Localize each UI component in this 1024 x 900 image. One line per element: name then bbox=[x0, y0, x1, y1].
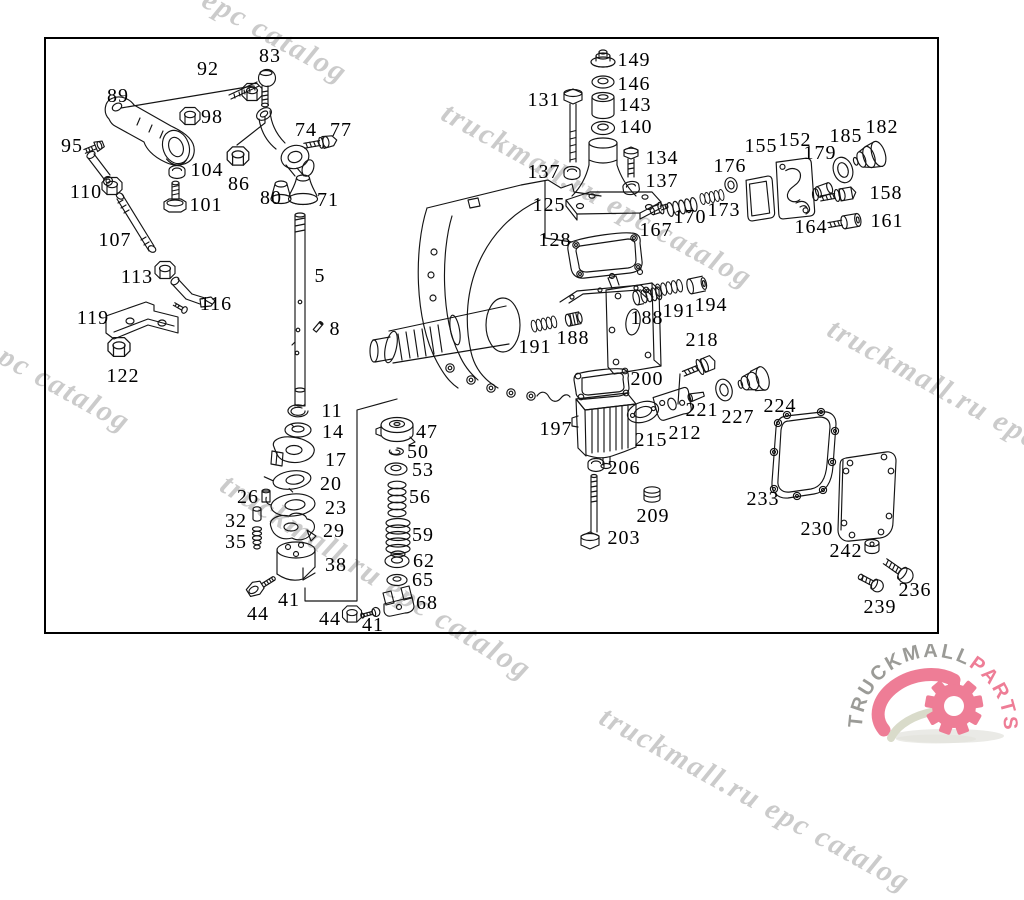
part-number-label: 227 bbox=[722, 407, 755, 427]
part-number-label: 17 bbox=[325, 450, 347, 470]
part-number-label: 20 bbox=[320, 474, 342, 494]
part-number-label: 14 bbox=[322, 422, 344, 442]
part-number-label: 224 bbox=[764, 396, 797, 416]
part-number-label: 92 bbox=[197, 59, 219, 79]
part-number-label: 182 bbox=[866, 117, 899, 137]
part-number-label: 74 bbox=[295, 120, 317, 140]
part-number-label: 77 bbox=[330, 120, 352, 140]
part-number-label: 41 bbox=[362, 615, 384, 635]
part-number-label: 11 bbox=[321, 401, 342, 421]
part-number-label: 32 bbox=[225, 511, 247, 531]
part-number-label: 194 bbox=[695, 295, 728, 315]
part-number-label: 170 bbox=[674, 207, 707, 227]
catalog-page: truckmall.ru epc catalogtruckmall.ru epc… bbox=[0, 0, 1024, 750]
truckmall-parts-logo: TRUCKMALLPARTS bbox=[836, 644, 1024, 750]
part-number-label: 233 bbox=[747, 489, 780, 509]
part-number-label: 107 bbox=[99, 230, 132, 250]
part-number-label: 29 bbox=[323, 521, 345, 541]
part-number-label: 56 bbox=[409, 487, 431, 507]
part-number-label: 158 bbox=[870, 183, 903, 203]
part-number-label: 191 bbox=[663, 301, 696, 321]
part-number-label: 134 bbox=[646, 148, 679, 168]
part-number-label: 173 bbox=[708, 200, 741, 220]
part-number-label: 104 bbox=[191, 160, 224, 180]
part-number-label: 215 bbox=[635, 430, 668, 450]
part-number-label: 218 bbox=[686, 330, 719, 350]
part-number-label: 212 bbox=[669, 423, 702, 443]
part-number-label: 137 bbox=[528, 162, 561, 182]
part-number-label: 95 bbox=[61, 136, 83, 156]
part-number-label: 44 bbox=[319, 609, 341, 629]
part-number-label: 185 bbox=[830, 126, 863, 146]
part-number-label: 128 bbox=[539, 230, 572, 250]
part-number-label: 44 bbox=[247, 604, 269, 624]
part-number-label: 59 bbox=[412, 525, 434, 545]
part-number-label: 164 bbox=[795, 217, 828, 237]
part-number-label: 83 bbox=[259, 46, 281, 66]
part-number-label: 197 bbox=[540, 419, 573, 439]
part-number-label: 5 bbox=[315, 266, 326, 286]
part-number-label: 86 bbox=[228, 174, 250, 194]
part-number-label: 116 bbox=[200, 294, 232, 314]
part-number-label: 188 bbox=[557, 328, 590, 348]
part-number-label: 89 bbox=[107, 86, 129, 106]
part-number-label: 62 bbox=[413, 551, 435, 571]
part-number-label: 206 bbox=[608, 458, 641, 478]
part-number-label: 161 bbox=[871, 211, 904, 231]
part-number-label: 209 bbox=[637, 506, 670, 526]
part-number-label: 101 bbox=[190, 195, 223, 215]
part-number-label: 113 bbox=[121, 267, 153, 287]
part-number-label: 68 bbox=[416, 593, 438, 613]
part-number-label: 137 bbox=[646, 171, 679, 191]
part-number-label: 236 bbox=[899, 580, 932, 600]
part-number-label: 230 bbox=[801, 519, 834, 539]
part-number-label: 38 bbox=[325, 555, 347, 575]
part-number-label: 239 bbox=[864, 597, 897, 617]
part-number-label: 41 bbox=[278, 590, 300, 610]
part-number-label: 143 bbox=[619, 95, 652, 115]
part-number-label: 8 bbox=[330, 319, 341, 339]
part-number-label: 71 bbox=[317, 190, 339, 210]
part-number-label: 65 bbox=[412, 570, 434, 590]
part-number-label: 122 bbox=[107, 366, 140, 386]
part-number-label: 47 bbox=[416, 422, 438, 442]
part-number-label: 98 bbox=[201, 107, 223, 127]
part-number-label: 176 bbox=[714, 156, 747, 176]
part-number-label: 221 bbox=[686, 400, 719, 420]
part-number-label: 155 bbox=[745, 136, 778, 156]
part-number-label: 53 bbox=[412, 460, 434, 480]
part-number-label: 191 bbox=[519, 337, 552, 357]
part-number-label: 119 bbox=[77, 308, 109, 328]
part-number-label: 149 bbox=[618, 50, 651, 70]
part-number-label: 188 bbox=[631, 308, 664, 328]
part-number-label: 140 bbox=[620, 117, 653, 137]
part-number-label: 125 bbox=[533, 195, 566, 215]
part-number-label: 80 bbox=[260, 188, 282, 208]
part-number-labels: 8392899874779510486110807110110711351168… bbox=[0, 0, 1024, 750]
part-number-label: 203 bbox=[608, 528, 641, 548]
part-number-label: 110 bbox=[70, 182, 102, 202]
part-number-label: 167 bbox=[640, 220, 673, 240]
part-number-label: 200 bbox=[631, 369, 664, 389]
part-number-label: 242 bbox=[830, 541, 863, 561]
part-number-label: 26 bbox=[237, 487, 259, 507]
part-number-label: 146 bbox=[618, 74, 651, 94]
part-number-label: 131 bbox=[528, 90, 561, 110]
part-number-label: 35 bbox=[225, 532, 247, 552]
part-number-label: 23 bbox=[325, 498, 347, 518]
